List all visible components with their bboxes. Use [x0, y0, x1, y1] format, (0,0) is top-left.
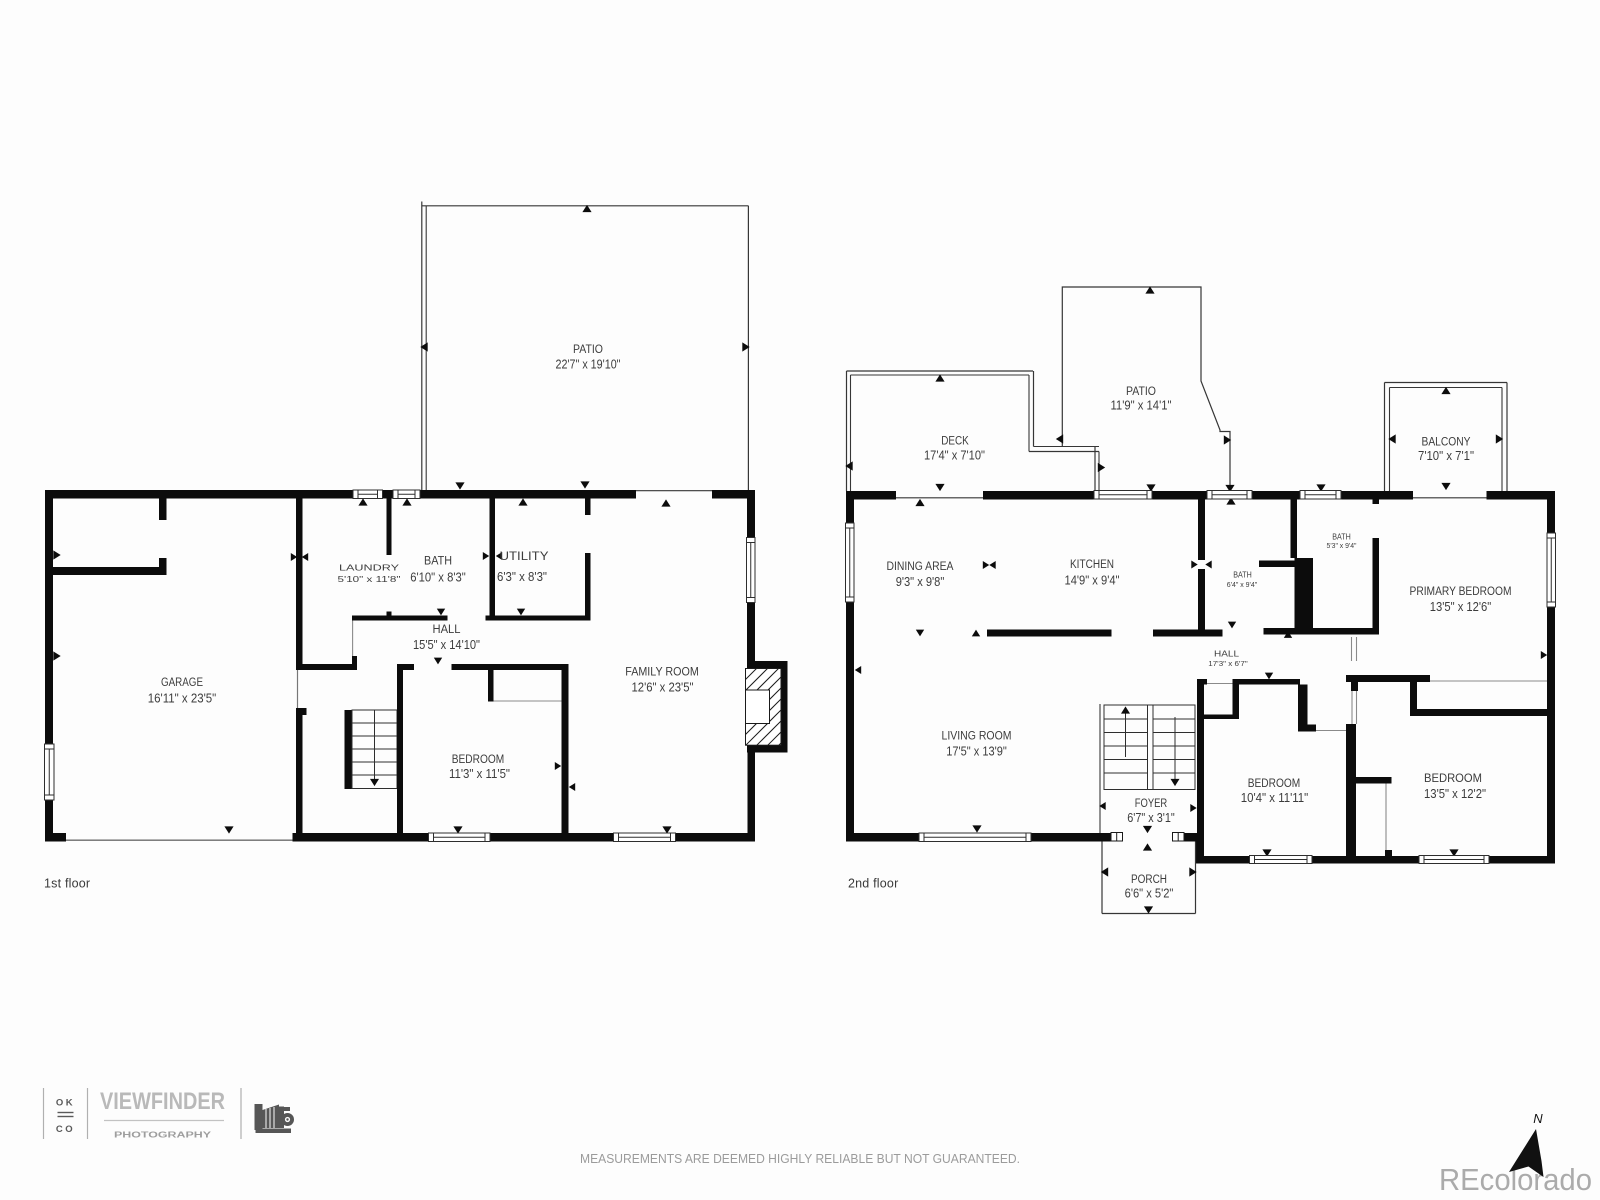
svg-text:PATIO: PATIO — [1126, 386, 1156, 398]
svg-text:BALCONY: BALCONY — [1422, 437, 1471, 449]
svg-text:7'10" x 7'1": 7'10" x 7'1" — [1418, 448, 1474, 463]
svg-text:PATIO: PATIO — [573, 344, 603, 356]
svg-text:PHOTOGRAPHY: PHOTOGRAPHY — [114, 1131, 212, 1140]
svg-text:11'3" x 11'5": 11'3" x 11'5" — [449, 766, 510, 781]
svg-text:PORCH: PORCH — [1131, 874, 1167, 886]
svg-text:17'5" x 13'9": 17'5" x 13'9" — [946, 744, 1007, 759]
svg-text:LIVING ROOM: LIVING ROOM — [942, 731, 1012, 743]
svg-text:15'5" x 14'10": 15'5" x 14'10" — [413, 637, 480, 652]
svg-text:LAUNDRY: LAUNDRY — [339, 563, 399, 573]
svg-text:CO: CO — [56, 1124, 75, 1135]
svg-text:PRIMARY BEDROOM: PRIMARY BEDROOM — [1410, 586, 1512, 598]
svg-text:FOYER: FOYER — [1135, 798, 1168, 810]
svg-text:BEDROOM: BEDROOM — [1424, 773, 1482, 785]
svg-text:22'7" x 19'10": 22'7" x 19'10" — [556, 357, 621, 372]
svg-text:6'7" x 3'1": 6'7" x 3'1" — [1127, 810, 1175, 825]
svg-text:N: N — [1533, 1111, 1543, 1126]
svg-text:BATH: BATH — [1233, 571, 1252, 580]
svg-text:5'3" x 9'4": 5'3" x 9'4" — [1327, 541, 1357, 550]
svg-text:14'9" x 9'4": 14'9" x 9'4" — [1065, 573, 1120, 588]
svg-text:16'11" x 23'5": 16'11" x 23'5" — [148, 691, 217, 706]
svg-text:6'10" x 8'3": 6'10" x 8'3" — [410, 570, 466, 585]
svg-text:10'4" x 11'11": 10'4" x 11'11" — [1241, 790, 1309, 805]
svg-text:MEASUREMENTS ARE DEEMED HIGHLY: MEASUREMENTS ARE DEEMED HIGHLY RELIABLE … — [580, 1151, 1020, 1166]
svg-text:BEDROOM: BEDROOM — [452, 754, 505, 766]
svg-text:17'3" x 6'7": 17'3" x 6'7" — [1208, 659, 1248, 668]
svg-text:1st floor: 1st floor — [44, 877, 90, 891]
svg-text:DINING AREA: DINING AREA — [887, 561, 954, 573]
svg-text:GARAGE: GARAGE — [161, 677, 203, 689]
svg-text:6'4" x 9'4": 6'4" x 9'4" — [1227, 580, 1258, 589]
svg-text:HALL: HALL — [433, 624, 462, 636]
svg-text:13'5" x 12'2": 13'5" x 12'2" — [1424, 786, 1486, 801]
svg-text:DECK: DECK — [941, 436, 969, 448]
svg-text:VIEWFINDER: VIEWFINDER — [100, 1088, 225, 1115]
svg-text:13'5" x 12'6": 13'5" x 12'6" — [1430, 599, 1492, 614]
svg-text:5'10" x 11'8": 5'10" x 11'8" — [338, 575, 401, 584]
svg-text:6'6" x 5'2": 6'6" x 5'2" — [1125, 886, 1174, 901]
svg-text:UTILITY: UTILITY — [500, 551, 549, 563]
svg-text:9'3" x 9'8": 9'3" x 9'8" — [896, 574, 945, 589]
svg-text:11'9" x 14'1": 11'9" x 14'1" — [1111, 398, 1172, 413]
svg-text:HALL: HALL — [1214, 650, 1240, 659]
svg-text:2nd floor: 2nd floor — [848, 877, 898, 891]
svg-text:FAMILY ROOM: FAMILY ROOM — [625, 667, 699, 679]
svg-text:17'4" x 7'10": 17'4" x 7'10" — [924, 448, 985, 463]
svg-text:BATH: BATH — [424, 556, 452, 568]
svg-text:6'3" x 8'3": 6'3" x 8'3" — [497, 569, 547, 584]
svg-text:12'6" x 23'5": 12'6" x 23'5" — [632, 680, 694, 695]
svg-text:KITCHEN: KITCHEN — [1070, 559, 1114, 571]
svg-text:BEDROOM: BEDROOM — [1248, 778, 1301, 790]
svg-text:OK: OK — [56, 1098, 75, 1109]
